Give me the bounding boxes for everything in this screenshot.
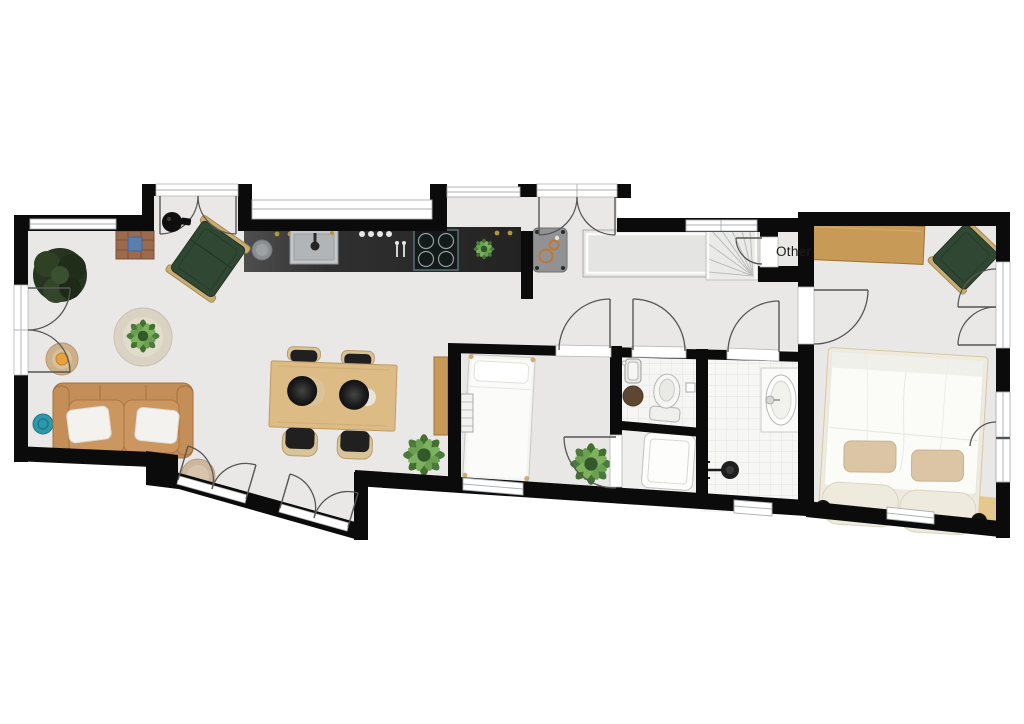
door-opening (632, 346, 686, 358)
vestibule-right-cap (615, 184, 631, 198)
sofa-pillow (66, 406, 112, 444)
door-opening (727, 348, 779, 361)
bedroom2-west-wall (448, 344, 461, 484)
vestibule-cap (518, 184, 537, 197)
floor-plan: Other (0, 0, 1024, 724)
wood-console (434, 357, 448, 435)
wc-rug (623, 386, 643, 406)
sofa-pillow (134, 407, 179, 444)
herbs-icon (474, 239, 495, 260)
desk (811, 222, 925, 265)
kitchen-counter-group (244, 227, 567, 272)
wall-top-kitchen (250, 219, 447, 231)
closet-south-wall (758, 266, 810, 282)
rug-plant-icon (127, 320, 160, 353)
blue-tile-tray (128, 237, 142, 251)
door-opening (556, 345, 611, 357)
master-east-wall (996, 212, 1010, 538)
bathroom-west-wall (696, 349, 708, 507)
window (686, 220, 757, 231)
dining-chair (282, 427, 318, 456)
washing-machine (641, 432, 696, 490)
floor-plan-page: Other (0, 0, 1024, 724)
room-label-other: Other (776, 244, 811, 259)
bed-pillow (911, 450, 963, 481)
dining-chair (337, 430, 373, 459)
master-north-wall (798, 212, 1010, 226)
dining-plant-icon (403, 434, 445, 476)
kitchen-stub-wall (521, 231, 533, 299)
hall-sideboard (583, 230, 711, 277)
sofa (53, 383, 193, 458)
teal-stool (33, 414, 53, 434)
window (252, 200, 432, 219)
bed-pillow (844, 441, 896, 472)
porch-right-wall (238, 184, 252, 231)
door-opening (610, 435, 622, 487)
window (734, 500, 772, 516)
vestibule-left-wall (430, 184, 447, 231)
bedroom-plant-icon (570, 443, 612, 485)
paper-holder (686, 383, 695, 392)
door-opening (798, 287, 814, 344)
single-bed-pillow (474, 361, 529, 384)
